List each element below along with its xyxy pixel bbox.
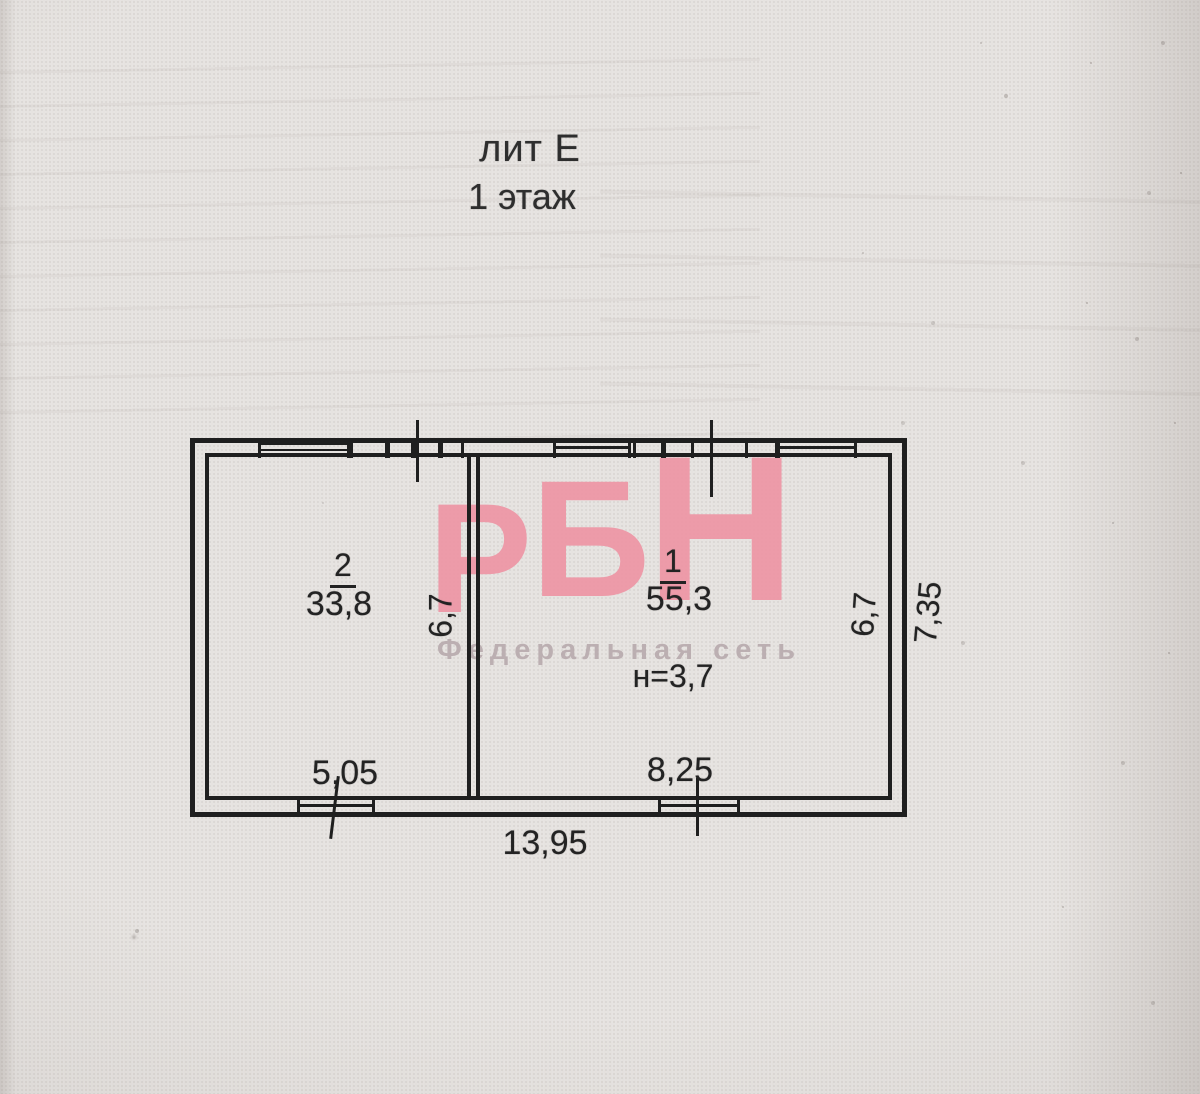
building-liter-title: лит Е xyxy=(450,128,610,171)
room1-ceiling-height: н=3,7 xyxy=(613,658,733,695)
room1-number: 1 xyxy=(660,543,686,584)
room1-label: 1 xyxy=(660,542,686,584)
window-symbol xyxy=(658,796,740,817)
survey-tick-top-left xyxy=(416,420,419,482)
dimension-total-width: 13,95 xyxy=(485,824,605,863)
scanned-floor-plan-page: Р Б Н Федеральная сеть лит Е 1 этаж 2 xyxy=(0,0,1200,1094)
room2-number: 2 xyxy=(330,547,356,588)
window-symbol xyxy=(663,438,694,458)
floor-number-title: 1 этаж xyxy=(442,176,602,218)
interior-wall-outline xyxy=(205,453,892,800)
window-symbol xyxy=(777,438,857,458)
room1-area: 55,3 xyxy=(629,580,729,619)
survey-tick-top-right xyxy=(710,420,713,497)
window-symbol xyxy=(350,438,388,458)
room2-label: 2 xyxy=(330,546,356,588)
window-symbol xyxy=(553,438,631,458)
window-symbol xyxy=(633,438,664,458)
dimension-room1-depth: 6,7 xyxy=(843,578,885,650)
partition-wall xyxy=(467,457,480,800)
dimension-exterior-depth: 7,35 xyxy=(906,571,950,654)
ink-layer: лит Е 1 этаж 2 33,8 1 55, xyxy=(0,0,1200,1094)
dimension-room2-depth: 6,7 xyxy=(423,581,460,651)
room2-area: 33,8 xyxy=(289,585,389,624)
window-symbol xyxy=(258,438,350,458)
dimension-room1-width: 8,25 xyxy=(630,751,730,790)
dimension-room2-width: 5,05 xyxy=(295,754,395,793)
window-symbol xyxy=(387,438,414,458)
window-symbol xyxy=(745,438,778,458)
window-symbol xyxy=(440,438,464,458)
